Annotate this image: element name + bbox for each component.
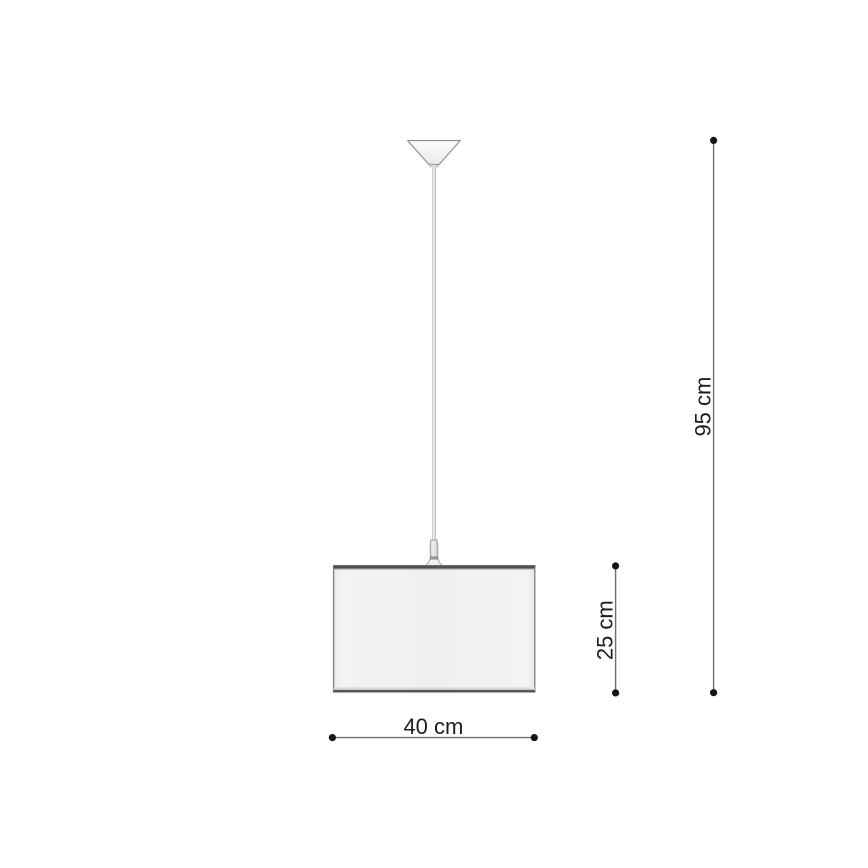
svg-text:95 cm: 95 cm — [690, 377, 715, 437]
svg-text:25 cm: 25 cm — [592, 600, 617, 660]
svg-text:40 cm: 40 cm — [403, 714, 463, 739]
